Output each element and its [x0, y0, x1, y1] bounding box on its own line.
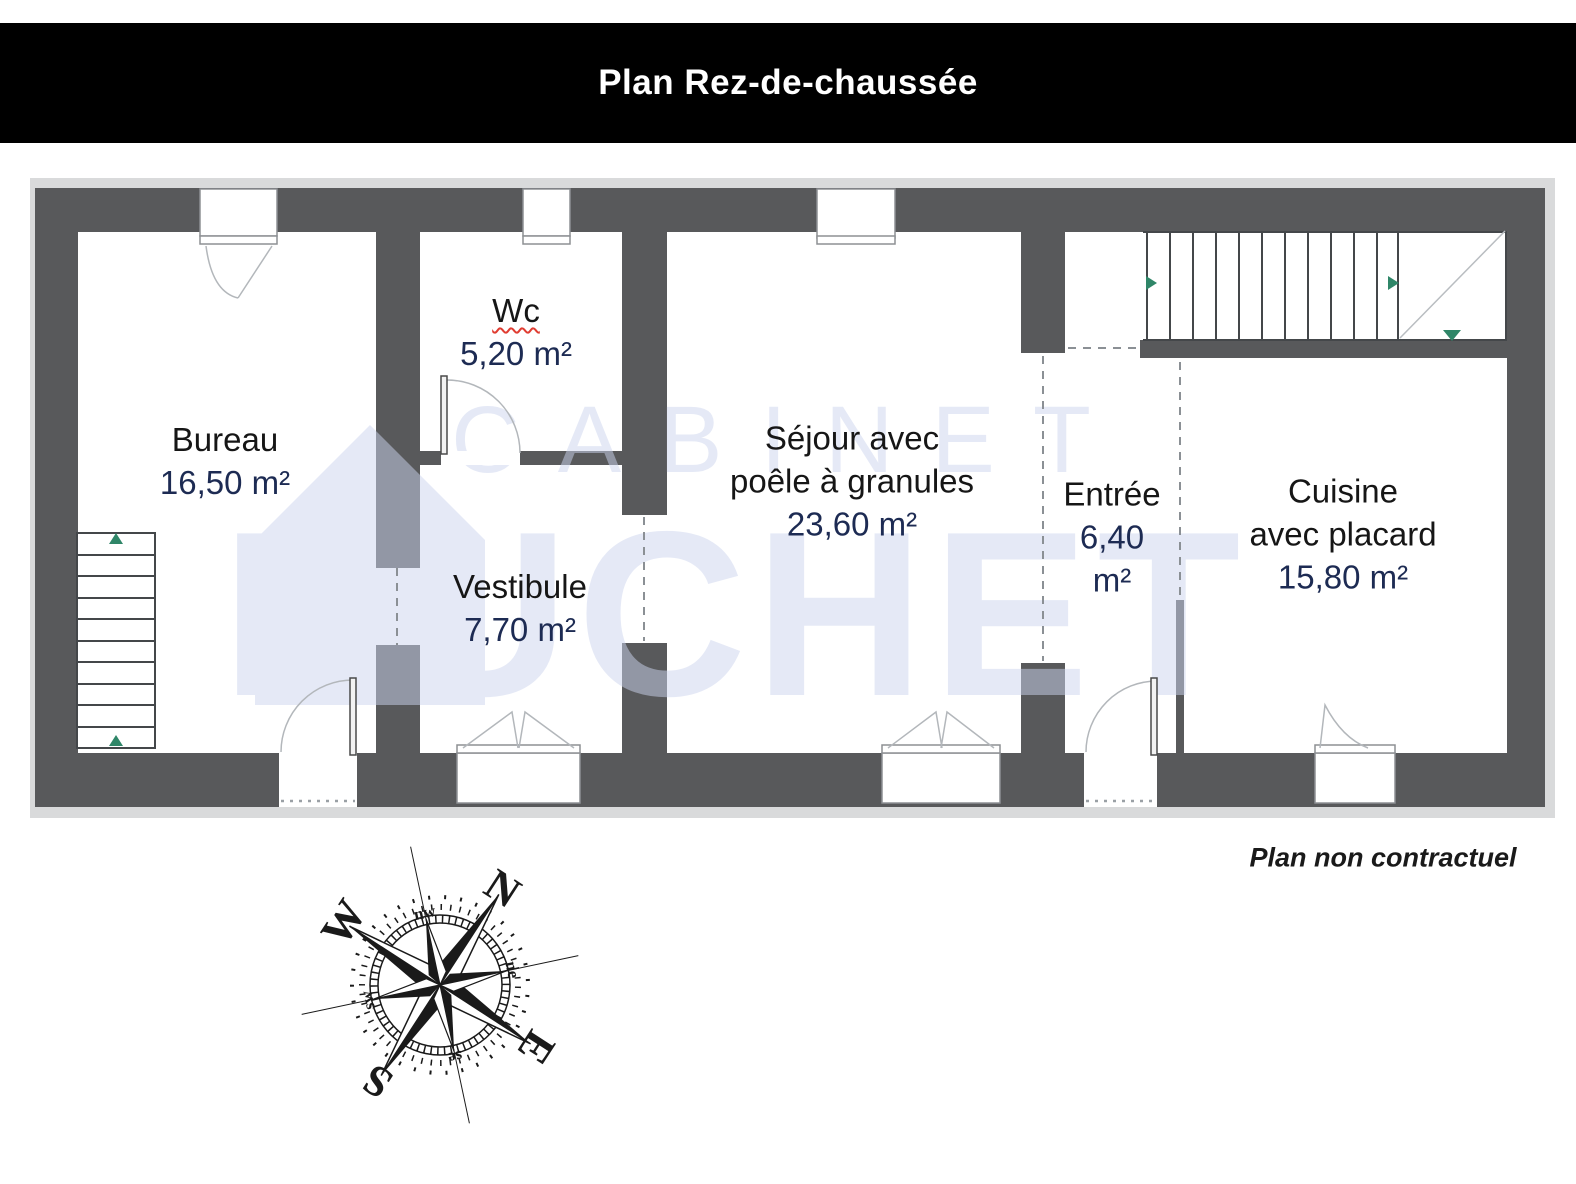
compass-sw-label: sw [356, 988, 379, 1011]
floor-plan-page: Plan Rez-de-chaussée CABINET H [0, 0, 1576, 1184]
room-name: Vestibule [453, 565, 587, 608]
room-name: Wc [460, 289, 572, 332]
room-label-entree: Entrée 6,40 m² [1063, 473, 1160, 602]
staircase-small [77, 533, 155, 748]
window-sejour-top [817, 189, 895, 244]
compass-se-label: se [446, 1047, 464, 1069]
room-name: Bureau [160, 418, 290, 461]
room-name: avec placard [1249, 513, 1436, 556]
room-name: Cuisine [1249, 470, 1436, 513]
compass-ne-label: ne [501, 959, 523, 980]
room-name: Entrée [1063, 473, 1160, 516]
compass-rose-icon: N E S W nw ne se sw [247, 792, 633, 1178]
window-wc [523, 189, 570, 244]
compass-w-label: W [311, 891, 376, 955]
room-area: 16,50 m² [160, 461, 290, 504]
compass-s-label: S [354, 1054, 401, 1108]
room-area: 7,70 m² [453, 608, 587, 651]
room-area: 15,80 m² [1249, 556, 1436, 599]
room-name: Séjour avec [730, 417, 974, 460]
room-label-sejour: Séjour avec poêle à granules 23,60 m² [730, 417, 974, 546]
compass-e-label: E [508, 1022, 565, 1073]
room-name: poêle à granules [730, 460, 974, 503]
room-label-vestibule: Vestibule 7,70 m² [453, 565, 587, 651]
compass-nw-label: nw [412, 901, 438, 924]
room-area: m² [1063, 559, 1160, 602]
compass-star [291, 836, 590, 1135]
room-area: 23,60 m² [730, 503, 974, 546]
room-label-bureau: Bureau 16,50 m² [160, 418, 290, 504]
room-label-wc: Wc 5,20 m² [460, 289, 572, 375]
staircase-main [1143, 231, 1507, 341]
disclaimer-text: Plan non contractuel [1249, 843, 1516, 874]
room-area: 5,20 m² [460, 332, 572, 375]
compass-n-label: N [476, 859, 530, 918]
room-area: 6,40 [1063, 516, 1160, 559]
room-label-cuisine: Cuisine avec placard 15,80 m² [1249, 470, 1436, 599]
